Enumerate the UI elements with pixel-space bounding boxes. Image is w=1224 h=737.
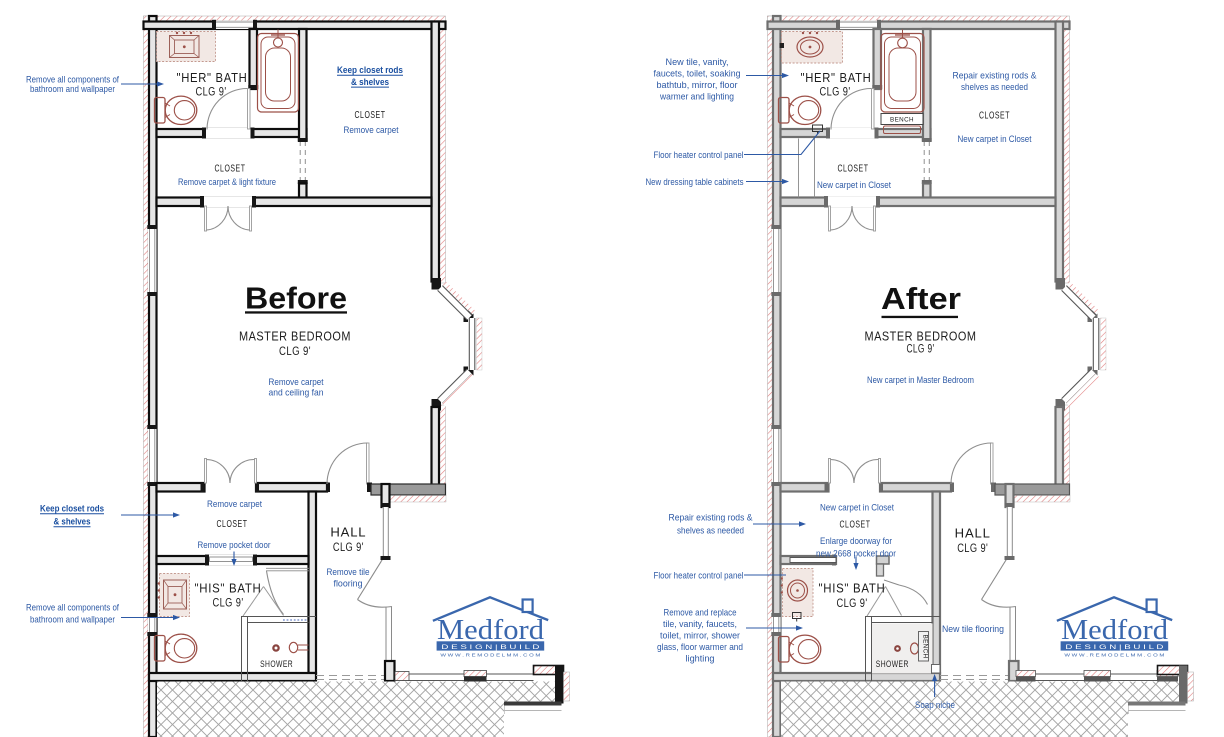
svg-text:& shelves: & shelves — [54, 517, 91, 528]
svg-text:Floor heater control panel: Floor heater control panel — [654, 150, 744, 160]
svg-text:BENCH: BENCH — [922, 635, 929, 659]
svg-text:MASTER BEDROOM: MASTER BEDROOM — [865, 329, 977, 344]
svg-text:Enlarge doorway for: Enlarge doorway for — [820, 536, 892, 546]
svg-text:New carpet in Master Bedroom: New carpet in Master Bedroom — [867, 375, 974, 385]
svg-text:CLOSET: CLOSET — [838, 162, 869, 174]
svg-text:new 2668 pocket door: new 2668 pocket door — [816, 548, 896, 558]
svg-text:Keep closet rods: Keep closet rods — [337, 65, 403, 76]
svg-text:CLOSET: CLOSET — [355, 109, 386, 121]
svg-text:"HIS" BATH: "HIS" BATH — [195, 581, 262, 596]
svg-text:D E S I G N | B U I L D: D E S I G N | B U I L D — [1065, 645, 1164, 651]
svg-text:HALL: HALL — [330, 525, 366, 540]
svg-text:New carpet in Closet: New carpet in Closet — [958, 134, 1032, 144]
svg-text:Remove tile: Remove tile — [327, 567, 370, 577]
svg-text:CLG 9': CLG 9' — [820, 87, 851, 99]
svg-text:CLOSET: CLOSET — [215, 162, 246, 174]
svg-text:CLG 9': CLG 9' — [279, 346, 311, 358]
svg-text:Medford: Medford — [437, 614, 545, 646]
svg-text:New carpet in Closet: New carpet in Closet — [817, 180, 891, 190]
svg-text:and ceiling fan: and ceiling fan — [269, 387, 324, 397]
svg-text:Remove all components of: Remove all components of — [26, 602, 119, 612]
svg-text:Medford: Medford — [1061, 614, 1169, 646]
svg-text:SHOWER: SHOWER — [876, 659, 909, 670]
svg-text:W W W . R E M O D E L M M . C: W W W . R E M O D E L M M . C O M — [1064, 653, 1164, 658]
svg-text:Remove pocket door: Remove pocket door — [198, 540, 271, 550]
svg-text:Repair existing rods &: Repair existing rods & — [953, 71, 1038, 81]
svg-text:& shelves: & shelves — [351, 77, 389, 88]
svg-text:flooring: flooring — [334, 579, 363, 589]
svg-text:Remove carpet: Remove carpet — [207, 499, 262, 509]
svg-text:New dressing table cabinets: New dressing table cabinets — [646, 177, 744, 187]
svg-text:CLG 9': CLG 9' — [333, 542, 364, 554]
svg-text:CLOSET: CLOSET — [979, 110, 1010, 122]
svg-text:glass, floor warmer and: glass, floor warmer and — [657, 642, 743, 652]
svg-text:bathtub, mirror, floor: bathtub, mirror, floor — [657, 80, 738, 90]
svg-text:CLOSET: CLOSET — [840, 519, 871, 531]
svg-text:CLG 9': CLG 9' — [907, 344, 935, 356]
svg-text:"HER" BATH: "HER" BATH — [801, 70, 872, 85]
svg-text:Remove carpet & light fixture: Remove carpet & light fixture — [178, 177, 276, 187]
svg-text:warmer and lighting: warmer and lighting — [659, 92, 734, 102]
svg-text:shelves as needed: shelves as needed — [961, 82, 1028, 92]
svg-text:"HIS" BATH: "HIS" BATH — [819, 581, 886, 596]
svg-text:Floor heater control panel: Floor heater control panel — [654, 570, 744, 580]
svg-text:MASTER BEDROOM: MASTER BEDROOM — [239, 329, 351, 344]
svg-text:Before: Before — [245, 281, 347, 316]
svg-text:tile, vanity, faucets,: tile, vanity, faucets, — [663, 619, 737, 629]
svg-text:W W W . R E M O D E L M M . C: W W W . R E M O D E L M M . C O M — [440, 653, 540, 658]
svg-text:New carpet in Closet: New carpet in Closet — [820, 503, 894, 513]
svg-text:Keep closet rods: Keep closet rods — [40, 504, 104, 515]
svg-text:toilet, mirror, shower: toilet, mirror, shower — [660, 631, 740, 641]
svg-text:SHOWER: SHOWER — [260, 659, 293, 670]
svg-text:Remove and replace: Remove and replace — [664, 608, 737, 618]
svg-text:bathroom and wallpaper: bathroom and wallpaper — [30, 614, 115, 624]
svg-text:bathroom and wallpaper: bathroom and wallpaper — [30, 84, 115, 94]
svg-text:Remove all components of: Remove all components of — [26, 74, 119, 84]
svg-text:CLOSET: CLOSET — [217, 518, 248, 530]
svg-text:HALL: HALL — [955, 526, 991, 541]
svg-text:faucets, toilet, soaking: faucets, toilet, soaking — [654, 69, 741, 79]
svg-text:New tile flooring: New tile flooring — [942, 624, 1004, 634]
svg-text:CLG 9': CLG 9' — [957, 543, 988, 555]
svg-text:shelves as needed: shelves as needed — [677, 525, 744, 535]
svg-text:CLG 9': CLG 9' — [196, 87, 227, 99]
svg-text:CLG 9': CLG 9' — [837, 598, 868, 610]
svg-text:After: After — [881, 281, 961, 316]
svg-text:Soap niche: Soap niche — [915, 700, 955, 710]
svg-text:Remove carpet: Remove carpet — [344, 125, 399, 135]
svg-text:D E S I G N | B U I L D: D E S I G N | B U I L D — [441, 645, 540, 651]
svg-text:BENCH: BENCH — [890, 116, 914, 123]
svg-text:Remove carpet: Remove carpet — [269, 377, 324, 387]
svg-text:lighting: lighting — [686, 654, 715, 664]
svg-text:New tile, vanity,: New tile, vanity, — [666, 57, 729, 67]
svg-text:Repair existing rods &: Repair existing rods & — [669, 512, 754, 522]
svg-text:"HER" BATH: "HER" BATH — [177, 70, 248, 85]
svg-text:CLG 9': CLG 9' — [213, 598, 244, 610]
